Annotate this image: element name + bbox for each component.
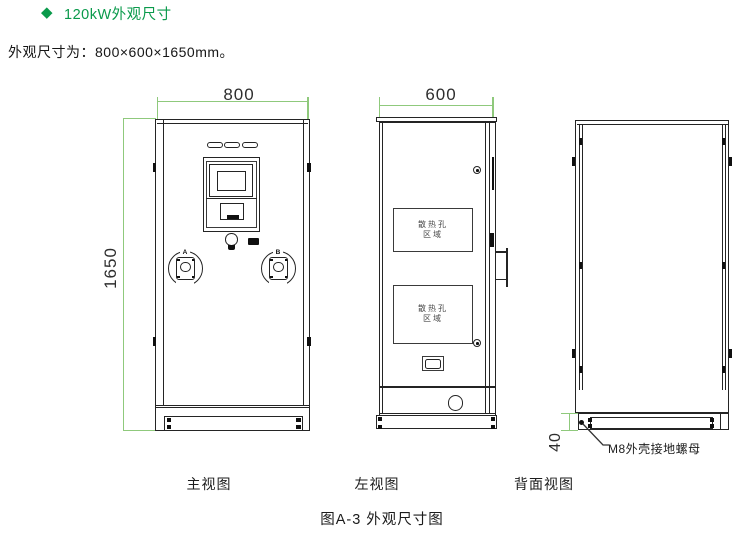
front-right-inner-line: [303, 120, 304, 405]
socket-corner: [177, 276, 180, 279]
door-seal-mark: [490, 233, 494, 247]
dim-tick-40: [561, 430, 578, 431]
screen: [217, 171, 247, 191]
hinge-mark: [572, 157, 575, 166]
lock-pin: [476, 169, 479, 172]
base-corner-mark: [167, 425, 172, 429]
door-dash: [722, 262, 725, 269]
back-door-line: [722, 125, 723, 390]
left-front-inner-line: [382, 123, 383, 414]
dim-ext-left: [157, 97, 158, 119]
dim-label-40: 40: [547, 432, 565, 452]
back-door-line: [725, 125, 726, 390]
front-base-line: [156, 407, 310, 408]
left-band-line: [379, 386, 496, 388]
section-bullet-icon: ◆: [41, 3, 53, 21]
dim-tick-1650-top: [123, 118, 156, 119]
base-corner-mark: [491, 417, 495, 421]
caption-back-view: 背面视图: [514, 474, 574, 494]
hinge-mark: [153, 337, 157, 346]
socket-corner: [270, 259, 273, 262]
base-corner-mark: [491, 425, 495, 429]
left-door-line: [485, 123, 486, 414]
front-left-inner-line: [163, 120, 164, 405]
holster-bracket-arm: [495, 251, 507, 253]
gun-socket-pin: [273, 262, 284, 273]
manual-page: ◆ 120kW外观尺寸 外观尺寸为：800×600×1650mm。 800 16…: [0, 0, 742, 541]
door-dash: [722, 366, 725, 373]
indicator-slot: [207, 142, 223, 148]
left-port-inner: [425, 359, 441, 369]
emergency-stop-button: [225, 233, 238, 246]
socket-corner: [285, 259, 288, 262]
dim-tick-40: [561, 413, 578, 414]
intro-text: 外观尺寸为：800×600×1650mm。: [8, 42, 234, 62]
socket-corner: [270, 276, 273, 279]
front-base-inset: [164, 416, 303, 431]
door-dash: [722, 138, 725, 145]
dim-ext-right: [307, 97, 308, 119]
door-dash: [579, 138, 582, 145]
back-door-line: [579, 125, 580, 390]
socket-corner: [192, 276, 195, 279]
gun-socket-pin: [180, 262, 191, 273]
door-dash: [579, 366, 582, 373]
front-top-inner-line: [157, 123, 308, 124]
hinge-mark: [307, 337, 311, 346]
back-cabinet-outline: [575, 120, 729, 413]
left-door-line: [489, 123, 490, 414]
base-corner-mark: [710, 418, 714, 422]
door-dash: [579, 262, 582, 269]
dim-label-800: 800: [214, 85, 264, 105]
back-top-inner-line: [577, 124, 728, 125]
base-corner-mark: [378, 425, 382, 429]
vent-label-line2: 区域: [423, 230, 443, 240]
vent-label-line1: 散热孔: [418, 304, 448, 314]
base-corner-mark: [167, 418, 172, 422]
gun-a-label: A: [180, 250, 190, 256]
vent-label-line2: 区域: [423, 314, 443, 324]
emergency-stop-stem: [228, 245, 236, 250]
back-base-divider: [720, 414, 721, 430]
base-corner-mark: [296, 425, 301, 429]
indicator-slot: [242, 142, 258, 148]
ground-screw-label: M8外壳接地螺母: [608, 440, 701, 457]
leader-line: [581, 422, 611, 450]
left-base: [376, 415, 497, 429]
dim-line-40: [569, 413, 570, 431]
caption-front-view: 主视图: [186, 474, 232, 494]
hinge-mark: [572, 349, 575, 358]
door-seal-mark: [492, 157, 494, 190]
lock-pin: [476, 342, 479, 345]
left-band-hole: [448, 395, 464, 411]
front-base-line: [156, 405, 310, 406]
socket-corner: [192, 259, 195, 262]
figure-caption: 图A-3 外观尺寸图: [312, 508, 452, 529]
dim-tick-1650-bottom: [123, 430, 156, 431]
dim-line-1650: [123, 118, 124, 431]
socket-corner: [285, 276, 288, 279]
dim-label-600: 600: [416, 85, 466, 105]
caption-left-view: 左视图: [354, 474, 400, 494]
hinge-mark: [153, 163, 157, 172]
section-title: 120kW外观尺寸: [64, 3, 172, 24]
base-corner-mark: [378, 417, 382, 421]
card-slot: [227, 215, 239, 219]
key-switch: [248, 238, 260, 245]
gun-b-label: B: [273, 250, 283, 256]
base-corner-mark: [710, 424, 714, 428]
holster-bracket-arm: [495, 279, 507, 281]
vent-area-lower: 散热孔 区域: [393, 285, 473, 344]
indicator-slot: [224, 142, 240, 148]
panel-divider: [206, 198, 257, 199]
dim-ext-right: [492, 97, 493, 118]
socket-corner: [177, 259, 180, 262]
vent-label-line1: 散热孔: [418, 220, 448, 230]
base-corner-mark: [296, 418, 301, 422]
vent-area-upper: 散热孔 区域: [393, 208, 473, 252]
hinge-mark: [729, 157, 732, 166]
hinge-mark: [307, 163, 311, 172]
dim-label-1650: 1650: [101, 247, 121, 289]
dim-ext-left: [379, 97, 380, 118]
back-door-line: [582, 125, 583, 390]
holster-bracket-post: [506, 248, 508, 287]
hinge-mark: [729, 349, 732, 358]
